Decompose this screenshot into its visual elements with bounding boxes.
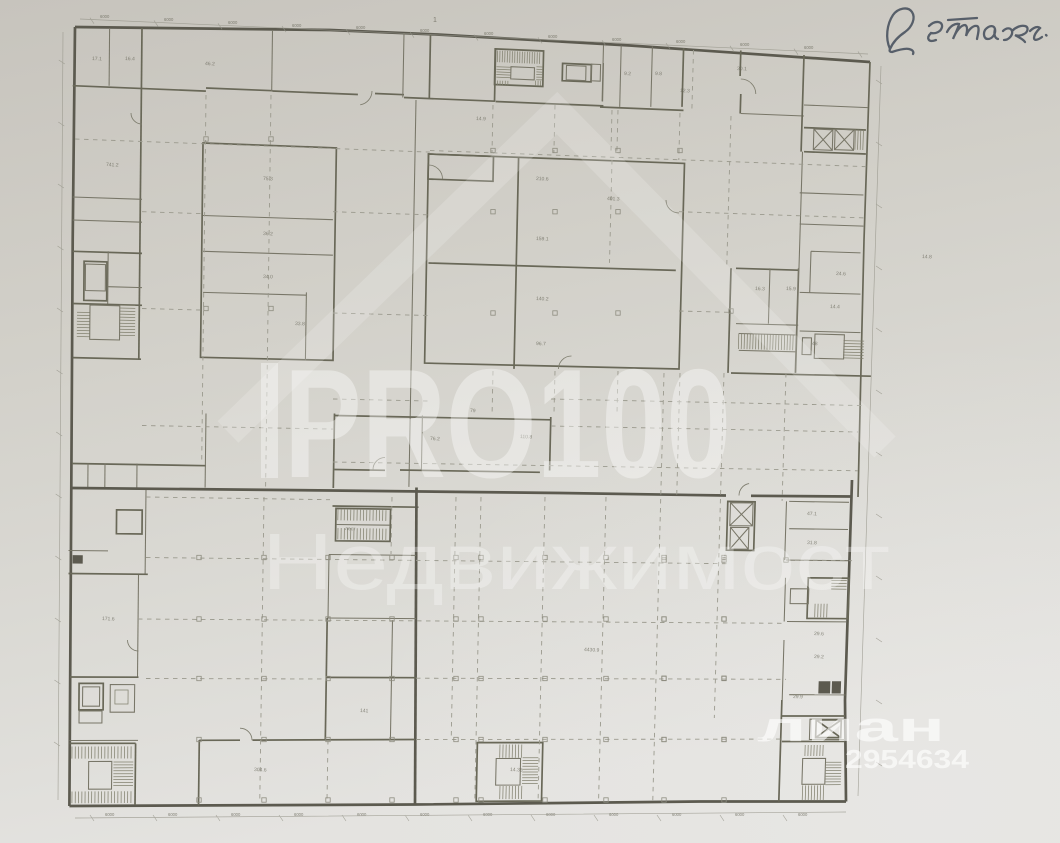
svg-text:6000: 6000: [548, 34, 558, 39]
svg-text:33.8: 33.8: [295, 321, 305, 327]
svg-text:6000: 6000: [672, 812, 682, 817]
svg-text:6000: 6000: [100, 14, 110, 19]
svg-text:6000: 6000: [612, 37, 622, 42]
svg-text:Недвижимост: Недвижимост: [262, 517, 890, 606]
svg-text:48: 48: [812, 341, 818, 347]
svg-text:6000: 6000: [105, 812, 115, 817]
svg-text:14.8: 14.8: [922, 254, 932, 260]
svg-text:46.2: 46.2: [205, 61, 215, 67]
svg-text:4430.9: 4430.9: [584, 647, 600, 654]
svg-text:14.4: 14.4: [830, 304, 840, 310]
svg-text:75.3: 75.3: [263, 176, 273, 182]
svg-text:171.6: 171.6: [102, 616, 115, 622]
svg-text:141: 141: [360, 708, 369, 714]
svg-text:14.35: 14.35: [510, 767, 523, 773]
svg-text:29.2: 29.2: [814, 654, 824, 660]
svg-text:6000: 6000: [420, 812, 430, 817]
svg-text:6000: 6000: [609, 812, 619, 817]
svg-text:304.6: 304.6: [254, 767, 267, 773]
svg-text:6000: 6000: [420, 28, 430, 33]
svg-text:16.4: 16.4: [125, 56, 135, 62]
svg-text:12.3: 12.3: [680, 88, 690, 94]
svg-text:741.2: 741.2: [106, 162, 119, 168]
svg-text:210.6: 210.6: [536, 176, 549, 182]
svg-text:34.0: 34.0: [263, 274, 273, 280]
svg-text:15.9: 15.9: [786, 286, 796, 292]
svg-text:6000: 6000: [798, 812, 808, 817]
svg-text:14.9: 14.9: [476, 116, 486, 122]
svg-text:36.2: 36.2: [263, 231, 273, 237]
svg-text:6000: 6000: [740, 42, 750, 47]
svg-text:29.6: 29.6: [814, 631, 824, 637]
svg-text:9.2: 9.2: [624, 71, 631, 77]
svg-text:PRO100: PRO100: [284, 337, 731, 510]
svg-text:6000: 6000: [231, 812, 241, 817]
svg-text:159.1: 159.1: [536, 236, 549, 242]
svg-text:2954634: 2954634: [845, 744, 970, 774]
svg-text:6000: 6000: [168, 812, 178, 817]
svg-text:30.1: 30.1: [737, 66, 747, 72]
svg-text:9.8: 9.8: [655, 71, 662, 77]
svg-text:17.1: 17.1: [92, 56, 102, 62]
svg-text:16.3: 16.3: [755, 286, 765, 292]
svg-text:29.9: 29.9: [793, 694, 803, 700]
svg-text:6000: 6000: [357, 812, 367, 817]
svg-text:6000: 6000: [804, 45, 814, 50]
svg-text:6000: 6000: [676, 39, 686, 44]
svg-text:6000: 6000: [484, 31, 494, 36]
svg-text:401.3: 401.3: [607, 196, 620, 202]
svg-text:6000: 6000: [292, 23, 302, 28]
svg-text:140.2: 140.2: [536, 296, 549, 302]
svg-text:6000: 6000: [164, 17, 174, 22]
svg-text:6000: 6000: [356, 25, 366, 30]
svg-text:6000: 6000: [228, 20, 238, 25]
svg-text:1: 1: [433, 17, 437, 24]
svg-text:24.6: 24.6: [836, 271, 846, 277]
svg-text:лиан: лиан: [757, 703, 945, 750]
